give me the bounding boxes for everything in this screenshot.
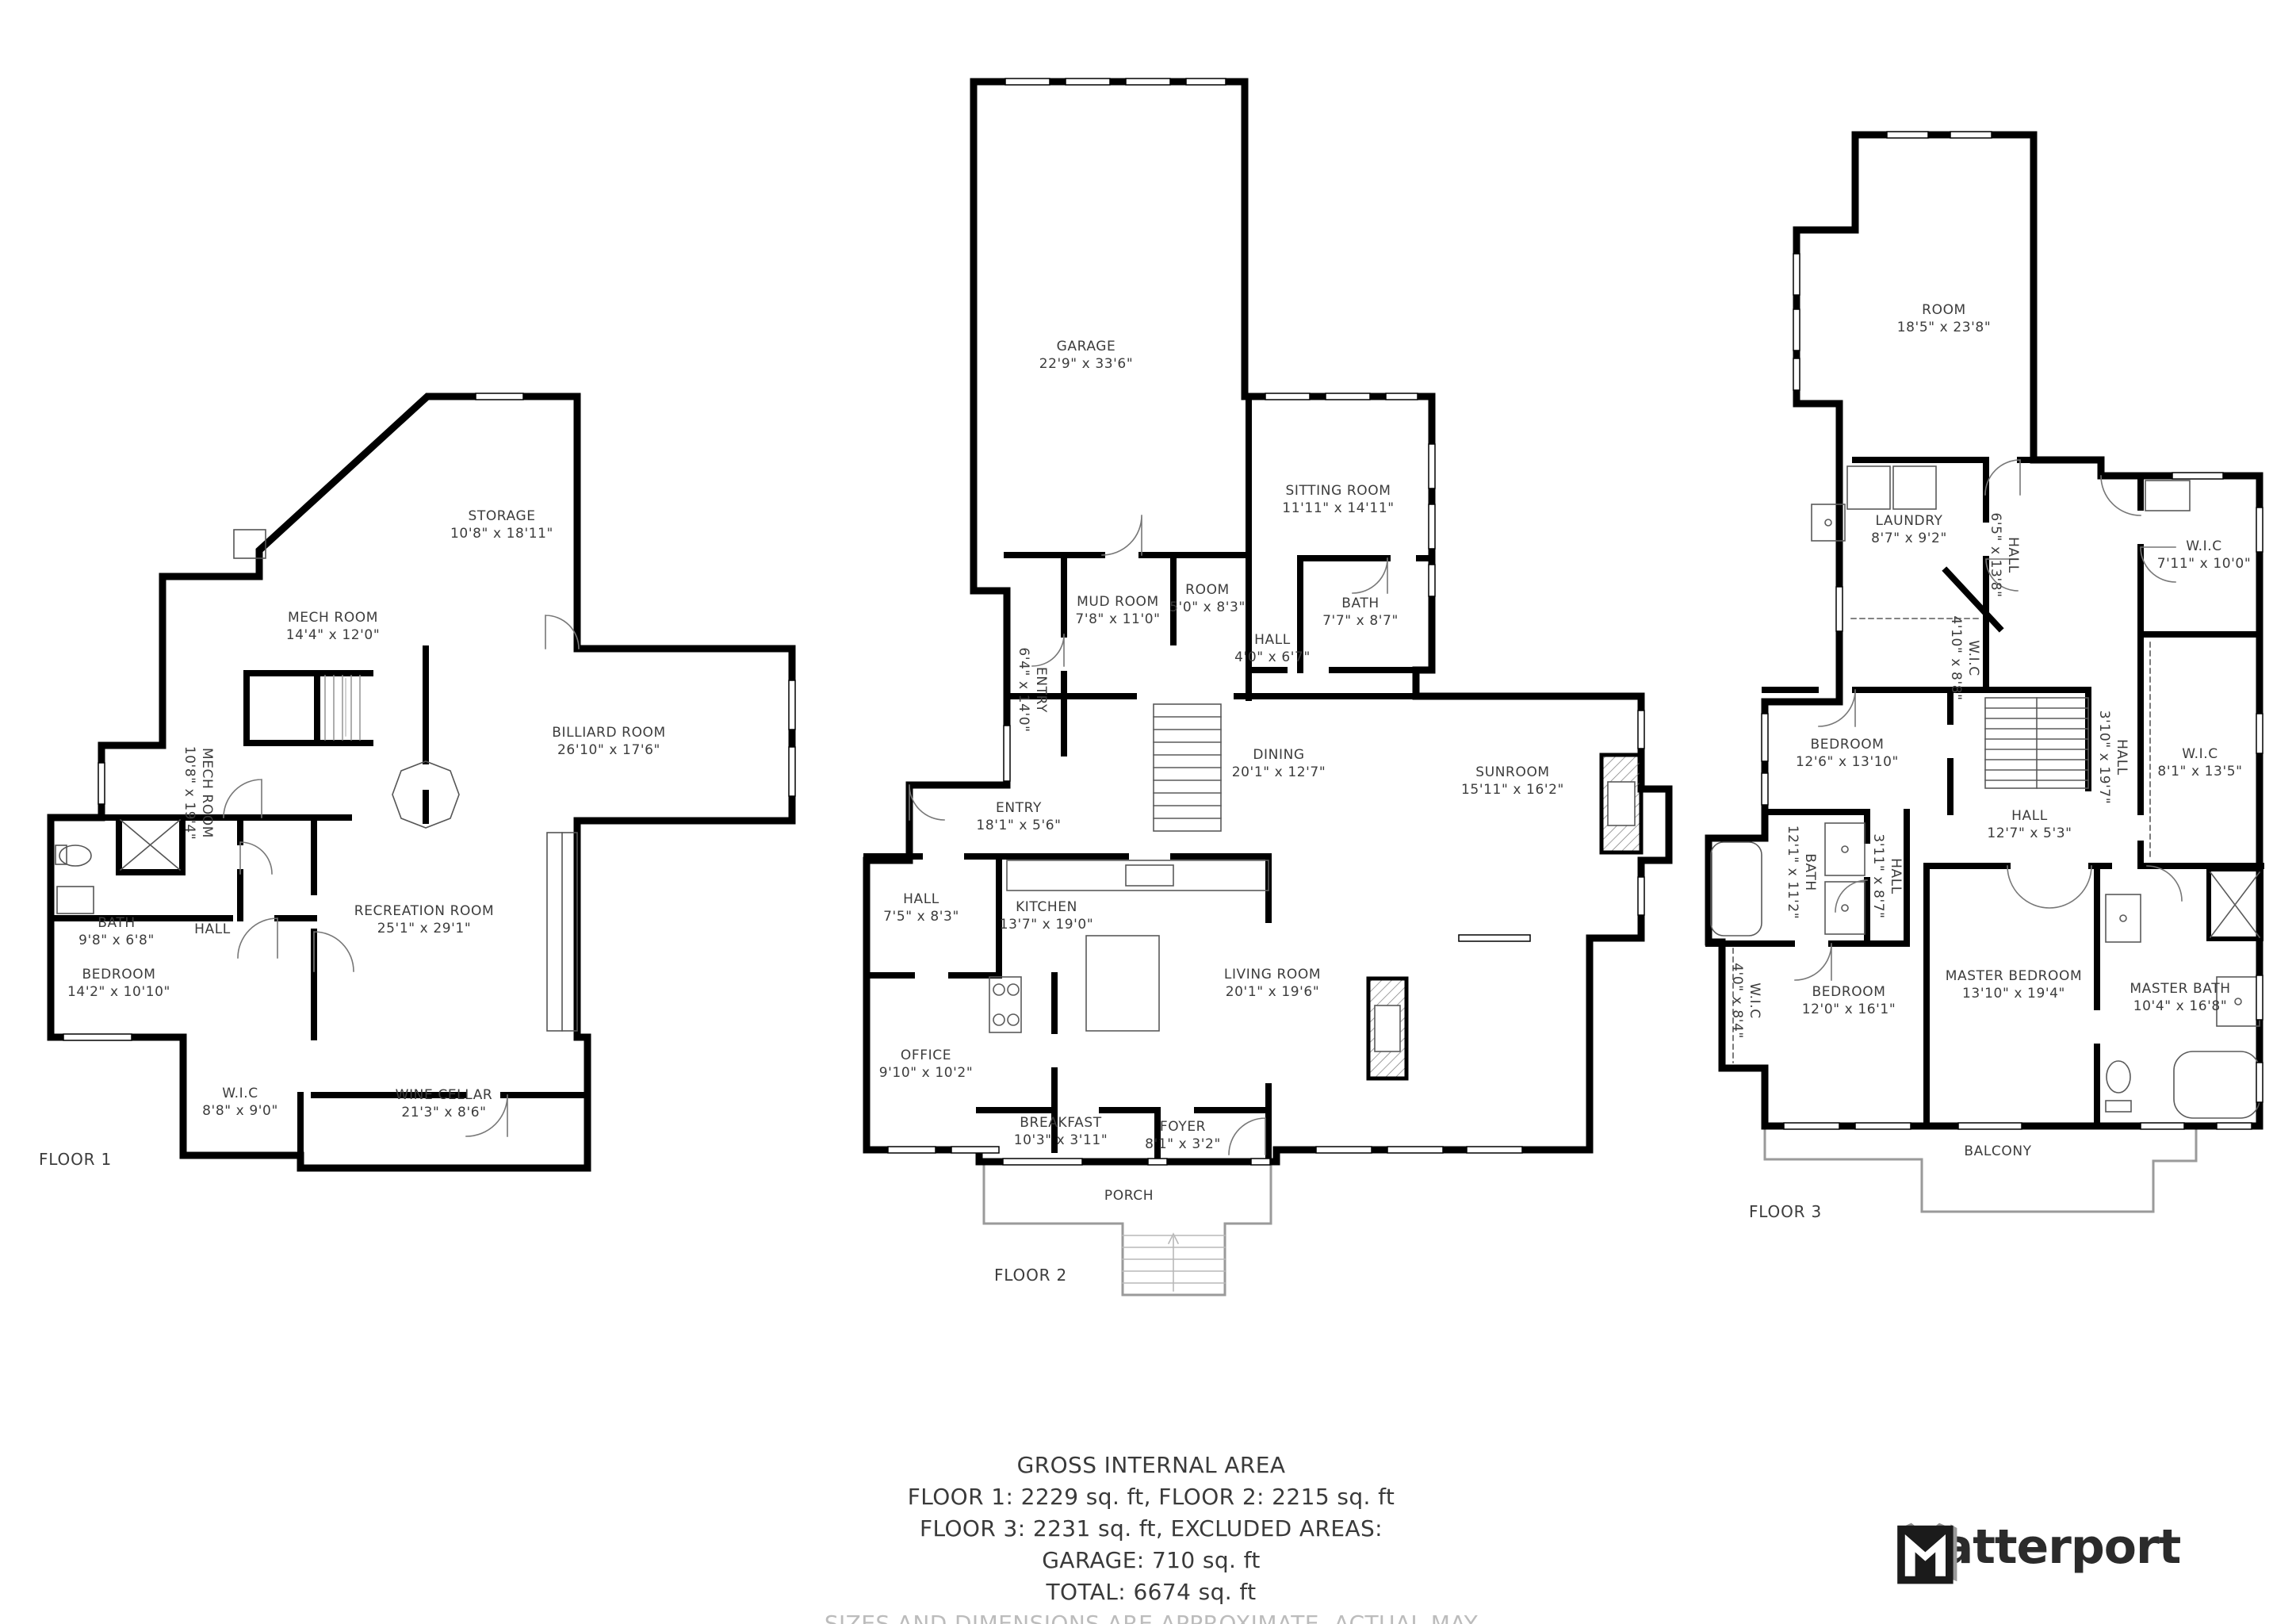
matterport-brand: Matterport xyxy=(1895,1519,2180,1575)
room-label-mech-room-1: MECH ROOM14'4" x 12'0" xyxy=(286,609,381,644)
room-label-wic-7-11: W.I.C7'11" x 10'0" xyxy=(2157,538,2252,573)
room-label-recreation-room: RECREATION ROOM25'1" x 29'1" xyxy=(354,902,494,937)
room-label-hall-3-10: HALL3'10" x 19'7" xyxy=(2095,710,2130,805)
room-label-mud-room: MUD ROOM7'8" x 11'0" xyxy=(1075,593,1160,628)
room-label-wic-4-10: W.I.C4'10" x 8'8" xyxy=(1947,615,1982,700)
floor-2-label: FLOOR 2 xyxy=(994,1266,1067,1285)
floorplan-page: STORAGE10'8" x 18'11" MECH ROOM14'4" x 1… xyxy=(0,0,2296,1624)
floor-3-plan xyxy=(1709,132,2263,1212)
room-label-entry-horizontal: ENTRY18'1" x 5'6" xyxy=(976,799,1061,834)
room-label-bedroom-12-6: BEDROOM12'6" x 13'10" xyxy=(1796,736,1899,771)
floor-3-label: FLOOR 3 xyxy=(1749,1202,1822,1221)
room-label-garage: GARAGE22'9" x 33'6" xyxy=(1039,338,1134,373)
summary-line-3: GARAGE: 710 sq. ft xyxy=(794,1545,1508,1576)
room-label-breakfast: BREAKFAST10'3" x 3'11" xyxy=(1014,1114,1108,1149)
room-label-bedroom-12-0: BEDROOM12'0" x 16'1" xyxy=(1802,983,1896,1018)
room-label-foyer: FOYER8'1" x 3'2" xyxy=(1145,1118,1221,1153)
floorplan-svg xyxy=(0,0,2296,1624)
gross-internal-area-summary: GROSS INTERNAL AREA FLOOR 1: 2229 sq. ft… xyxy=(794,1450,1508,1624)
room-label-hall-12-7: HALL12'7" x 5'3" xyxy=(1987,807,2072,842)
room-label-kitchen: KITCHEN13'7" x 19'0" xyxy=(1000,898,1094,933)
room-label-balcony: BALCONY xyxy=(1964,1143,2031,1160)
room-label-storage: STORAGE10'8" x 18'11" xyxy=(450,507,553,542)
room-label-dining: DINING20'1" x 12'7" xyxy=(1232,746,1326,781)
room-label-sitting-room: SITTING ROOM11'11" x 14'11" xyxy=(1282,482,1394,517)
floor-2-plan xyxy=(867,79,1669,1295)
room-label-bath-f2: BATH7'7" x 8'7" xyxy=(1322,595,1399,630)
room-label-living-room: LIVING ROOM20'1" x 19'6" xyxy=(1224,966,1321,1001)
room-label-wic-4-0: W.I.C4'0" x 8'4" xyxy=(1728,963,1763,1039)
floor-1-label: FLOOR 1 xyxy=(39,1150,112,1169)
summary-line-1: FLOOR 1: 2229 sq. ft, FLOOR 2: 2215 sq. … xyxy=(794,1481,1508,1513)
room-label-master-bedroom: MASTER BEDROOM13'10" x 19'4" xyxy=(1946,967,2083,1002)
room-label-entry-vertical: ENTRY6'4" x 14'0" xyxy=(1015,647,1050,732)
room-label-bath-f1: BATH9'8" x 6'8" xyxy=(78,914,155,949)
room-label-mech-room-2: MECH ROOM10'8" x 19'4" xyxy=(181,746,216,841)
room-label-porch: PORCH xyxy=(1104,1187,1154,1205)
room-label-hall-f1: HALL xyxy=(194,921,231,938)
room-label-room-f3: ROOM18'5" x 23'8" xyxy=(1897,301,1992,336)
room-label-hall-6-5: HALL6'5" x 13'8" xyxy=(1987,512,2022,597)
room-label-sunroom: SUNROOM15'11" x 16'2" xyxy=(1461,764,1564,799)
room-label-hall-3-11: HALL3'11" x 8'7" xyxy=(1869,833,1904,918)
room-label-hall-7-5: HALL7'5" x 8'3" xyxy=(883,891,959,925)
floor-1-plan xyxy=(51,393,795,1168)
room-label-wic-f1: W.I.C8'8" x 9'0" xyxy=(202,1085,278,1120)
summary-disclaimer: SIZES AND DIMENSIONS ARE APPROXIMATE, AC… xyxy=(794,1608,1508,1624)
room-label-office: OFFICE9'10" x 10'2" xyxy=(879,1047,974,1082)
summary-line-2: FLOOR 3: 2231 sq. ft, EXCLUDED AREAS: xyxy=(794,1513,1508,1545)
room-label-billiard-room: BILLIARD ROOM26'10" x 17'6" xyxy=(552,724,666,759)
room-label-laundry: LAUNDRY8'7" x 9'2" xyxy=(1871,512,1947,547)
room-label-bath-12-1: BATH12'1" x 11'2" xyxy=(1784,825,1819,920)
room-label-hall-4-0: HALL4'0" x 6'7" xyxy=(1234,631,1311,666)
room-label-room-f2: ROOM5'0" x 8'3" xyxy=(1169,581,1246,616)
room-label-master-bath: MASTER BATH10'4" x 16'8" xyxy=(2130,980,2230,1015)
summary-line-4: TOTAL: 6674 sq. ft xyxy=(794,1576,1508,1608)
room-label-wine-cellar: WINE CELLAR21'3" x 8'6" xyxy=(396,1086,493,1121)
room-label-wic-8-1: W.I.C8'1" x 13'5" xyxy=(2157,745,2242,780)
matterport-logo-icon xyxy=(1895,1519,1958,1588)
room-label-bedroom-f1: BEDROOM14'2" x 10'10" xyxy=(67,966,170,1001)
summary-title: GROSS INTERNAL AREA xyxy=(794,1450,1508,1481)
